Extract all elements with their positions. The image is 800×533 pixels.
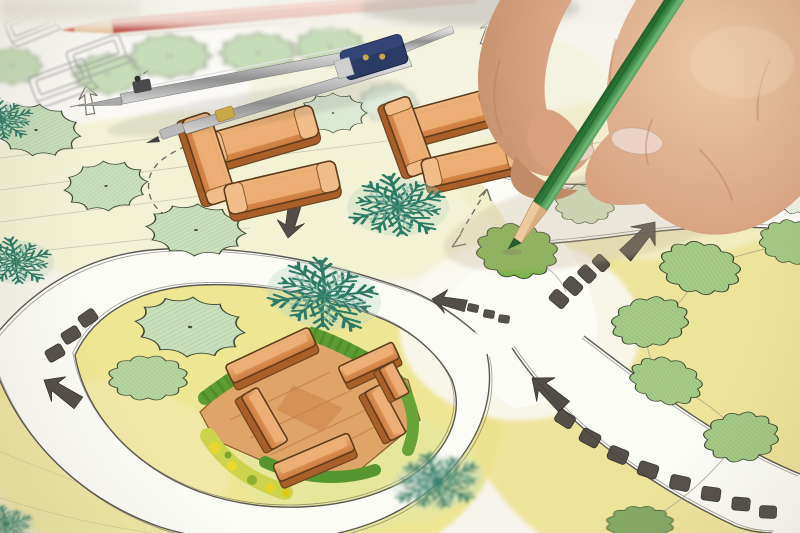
- vignette: [0, 0, 800, 533]
- scene-canvas: [0, 0, 800, 533]
- photo-landscape-plan: [0, 0, 800, 533]
